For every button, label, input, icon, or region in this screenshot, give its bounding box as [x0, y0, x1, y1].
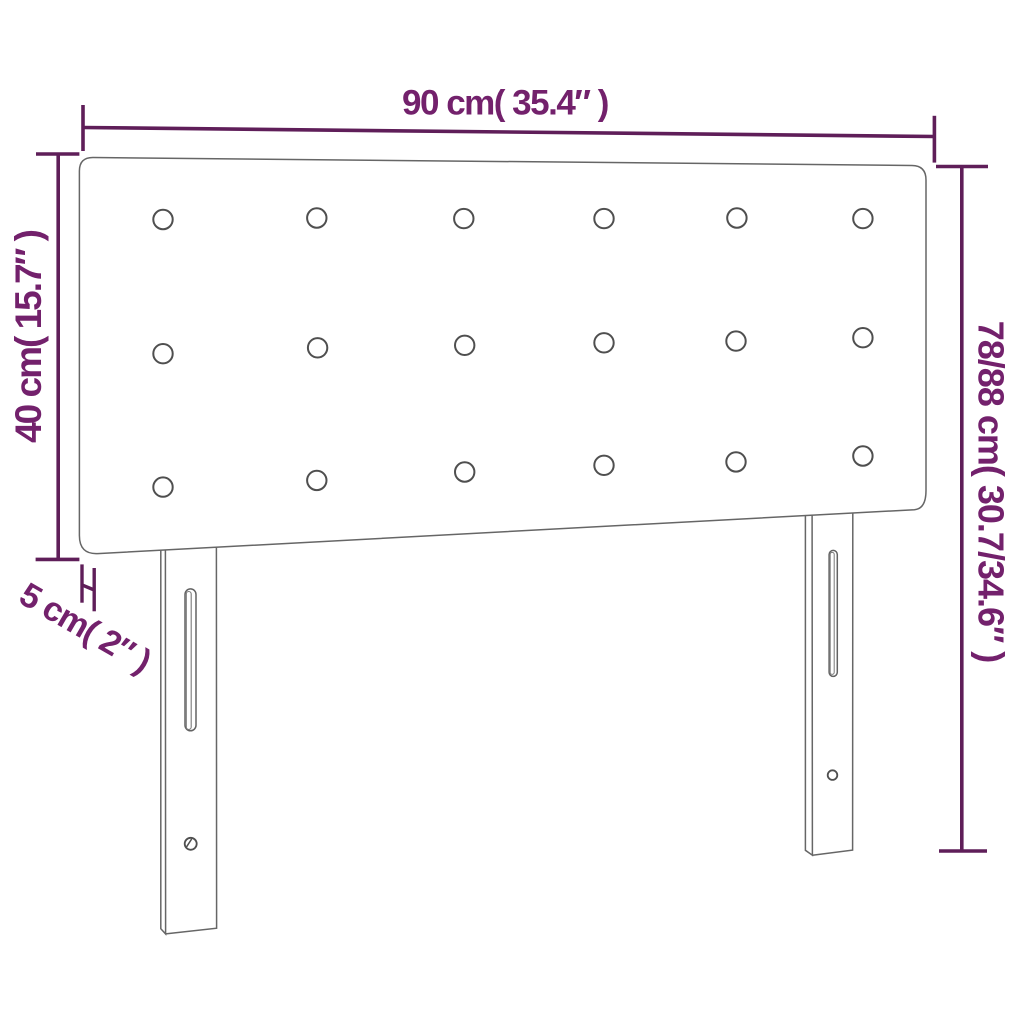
svg-text:5 cm( 2″ ): 5 cm( 2″ )	[13, 576, 157, 681]
svg-text:78/88 cm( 30.7/34.6″ ): 78/88 cm( 30.7/34.6″ )	[971, 321, 1012, 662]
svg-text:90 cm( 35.4″ ): 90 cm( 35.4″ )	[402, 84, 608, 123]
svg-text:40 cm( 15.7″ ): 40 cm( 15.7″ )	[8, 230, 49, 443]
